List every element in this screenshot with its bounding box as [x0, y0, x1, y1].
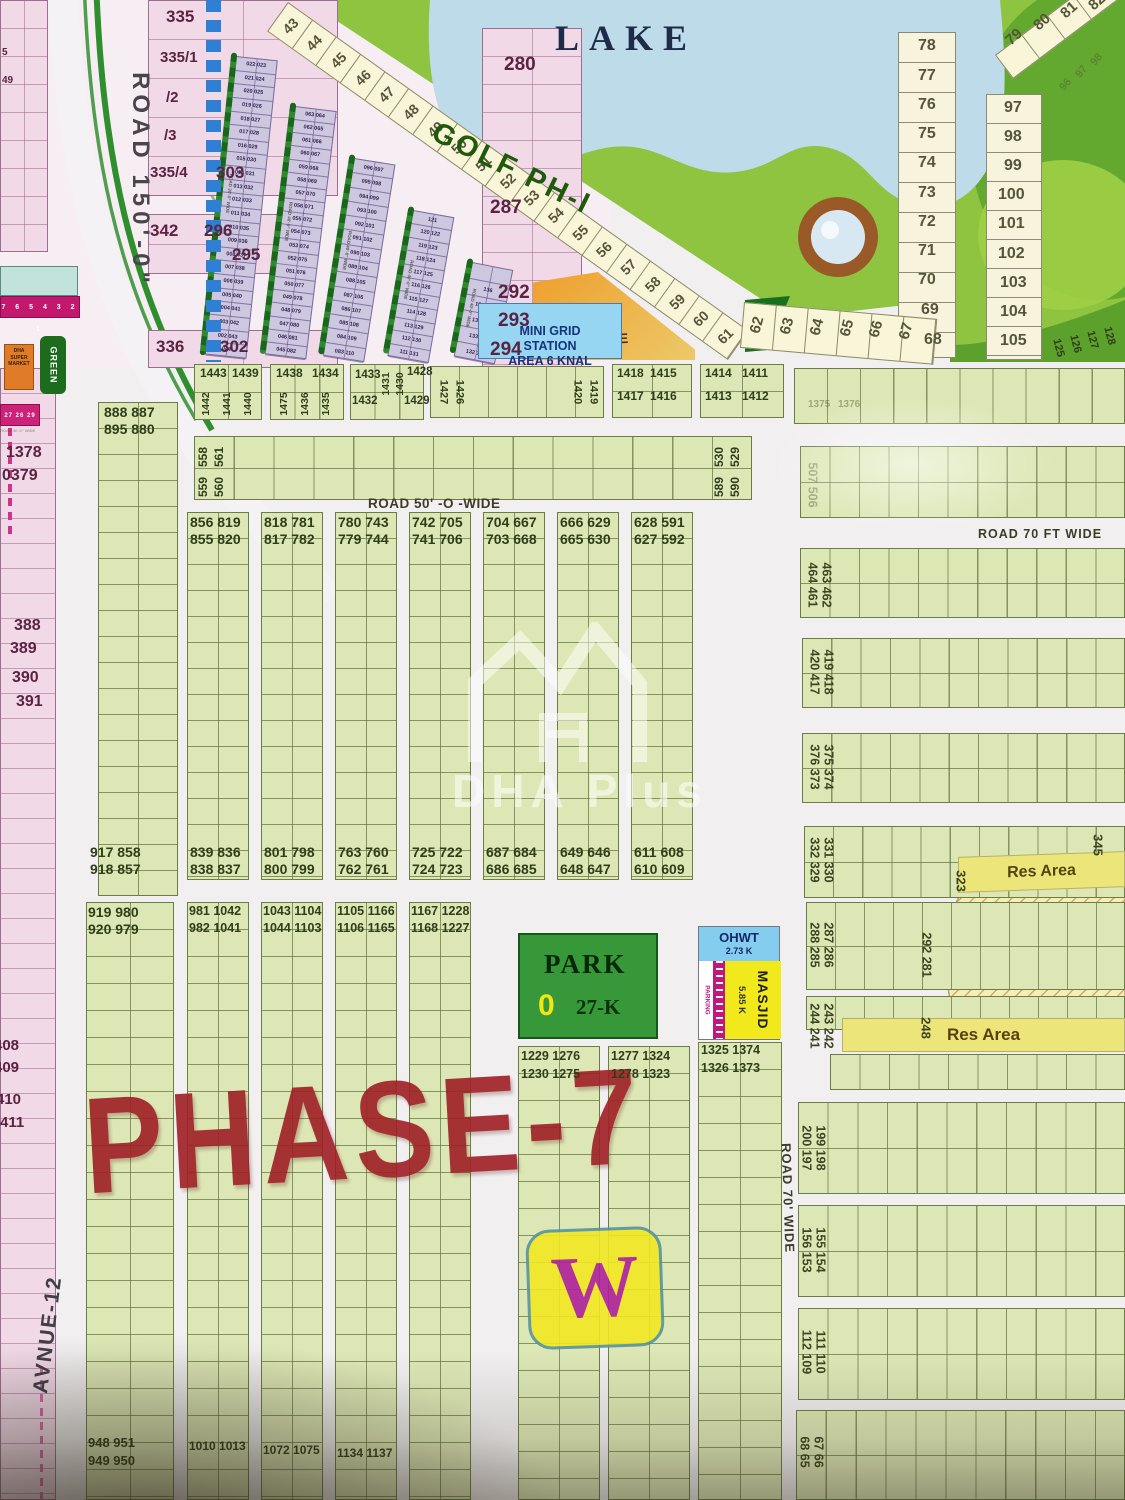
- plot-label: 100: [998, 187, 1025, 203]
- plot-label: 410: [0, 1092, 21, 1107]
- plot-label: 687 684: [486, 845, 537, 859]
- plot-label: 1043 1104: [263, 905, 321, 918]
- parking-strip: PARKING: [699, 961, 714, 1039]
- plot-label: 331 330: [822, 837, 835, 882]
- kiosk-label: DHA SUPER MARKET: [8, 348, 29, 367]
- plot-label: 335: [166, 8, 194, 25]
- plot-label: 104: [1000, 304, 1027, 320]
- watermark-text: DHA Plus: [452, 768, 708, 814]
- plot-label: /3: [164, 128, 177, 143]
- plot-label: 1439: [232, 367, 259, 379]
- plot-label: 895 880: [104, 422, 155, 436]
- plot-label: 763 760: [338, 845, 389, 859]
- plot-label: 742 705: [412, 515, 463, 529]
- plot-label: 67 66: [812, 1436, 825, 1467]
- plot-label: 335/4: [150, 165, 188, 180]
- plot-label: 1378: [6, 445, 42, 461]
- plot-label: 1106 1165: [337, 922, 395, 935]
- plot-label: 665 630: [560, 532, 611, 546]
- plot-label: 888 887: [104, 405, 155, 419]
- ohwt-label: OHWT: [699, 927, 779, 946]
- plot-label: 102: [998, 246, 1025, 262]
- plot-label: 336: [156, 338, 184, 355]
- plot-label: 981 1042: [189, 905, 241, 918]
- plot-label: 560: [213, 477, 225, 497]
- road-150-label: ROAD 150'-0": [128, 72, 152, 288]
- plot-label: 5: [2, 48, 8, 58]
- plot-label: 839 836: [190, 845, 241, 859]
- plot-label: 390: [12, 670, 39, 686]
- plot-label: 610 609: [634, 862, 685, 876]
- plot-label: 1438: [276, 367, 303, 379]
- plot-block: [335, 512, 397, 880]
- plot-label: 1426: [454, 380, 465, 404]
- plot-block: [802, 638, 1125, 708]
- plot-label: 375 374: [822, 744, 835, 789]
- plot-label: 99: [1004, 158, 1022, 174]
- plot-label: 68 65: [798, 1436, 811, 1467]
- plot-label: 74: [918, 155, 936, 171]
- plot-label: 105: [1000, 333, 1027, 349]
- plot-label: 686 685: [486, 862, 537, 876]
- plot-label: 71: [918, 243, 936, 259]
- plot-label: 332 329: [808, 837, 821, 882]
- plot-number: 59: [666, 290, 688, 312]
- plot-label: 762 761: [338, 862, 389, 876]
- res-area-label-2: Res Area: [947, 1025, 1020, 1044]
- plot-label: 1436: [300, 392, 311, 415]
- plot-label: 918 857: [90, 862, 141, 876]
- plot-block: [806, 902, 1125, 990]
- plot-label: 335/1: [160, 50, 198, 65]
- parking-ticks: [713, 961, 725, 1039]
- plot-label: 73: [918, 185, 936, 201]
- plot-label: 101: [998, 216, 1025, 232]
- plot-label: 818 781: [264, 515, 315, 529]
- plot-label: 1442: [201, 392, 212, 415]
- plot-label: 63: [778, 316, 797, 336]
- plot-number: 44: [303, 32, 325, 54]
- plot-block: [261, 512, 323, 880]
- plot-label: 391: [16, 694, 43, 710]
- plot-label: 287: [490, 198, 522, 217]
- plot-label: 1427: [438, 380, 449, 404]
- plot-label: /2: [166, 90, 179, 105]
- plot-label: 1433: [355, 370, 381, 382]
- plot-label: 420 417: [808, 649, 821, 694]
- plot-label: 296: [204, 222, 232, 239]
- green-strip-box: GREEN: [40, 336, 66, 394]
- lake-label: LAKE: [555, 20, 697, 56]
- park-area: PARK 0 27-K: [518, 933, 658, 1039]
- plot-label: 77: [918, 68, 936, 84]
- plot-label: 1441: [222, 392, 233, 415]
- plot-label: 112 109: [800, 1330, 813, 1375]
- plot-label: 1134 1137: [337, 1447, 392, 1459]
- plot-label: 1432: [352, 396, 378, 408]
- plot-label: 1415: [650, 367, 677, 379]
- plot-number: 60: [690, 307, 712, 329]
- kiosk-box: DHA SUPER MARKET: [4, 344, 34, 390]
- plot-block: [98, 402, 178, 896]
- plot-number: 43: [279, 14, 301, 36]
- plot-label: ROAD 40'-0" WIDE: [0, 429, 35, 433]
- plot-label: 558: [197, 447, 209, 467]
- plot-label: 1440: [243, 392, 254, 415]
- plot-label: 292 281: [920, 932, 933, 977]
- plot-label: 1428: [407, 367, 433, 379]
- plot-label: 530: [713, 447, 725, 467]
- plot-label: 1420: [572, 380, 583, 404]
- masjid-size: 5.85 K: [736, 986, 746, 1014]
- plot-label: 156 153: [800, 1227, 813, 1272]
- plot-label: 244 241: [808, 1003, 821, 1048]
- plot-label: 0379: [2, 468, 38, 484]
- plot-label: 1326 1373: [701, 1062, 760, 1075]
- plot-label: 1230 1275: [521, 1068, 580, 1081]
- plot-label: 590: [729, 477, 741, 497]
- plot-label: 741 706: [412, 532, 463, 546]
- plot-label: 199 198: [814, 1125, 827, 1170]
- plot-label: 856 819: [190, 515, 241, 529]
- plot-label: 72: [918, 214, 936, 230]
- plot-label: 287 286: [822, 922, 835, 967]
- plot-label: 49: [2, 76, 13, 86]
- plot-number: 58: [641, 273, 663, 295]
- plot-label: 627 592: [634, 532, 685, 546]
- plot-label: 78: [918, 38, 936, 54]
- plot-block: [798, 1205, 1125, 1297]
- plot-label: 559: [197, 477, 209, 497]
- plot-label: 67: [897, 321, 916, 341]
- plot-label: 1044 1103: [263, 922, 321, 935]
- plot-label: 76: [918, 97, 936, 113]
- plot-number: 61: [714, 325, 736, 347]
- plot-label: 1414: [705, 367, 732, 379]
- plot-label: 65: [838, 318, 857, 338]
- plot-label: 649 646: [560, 845, 611, 859]
- plot-label: 1443: [200, 367, 227, 379]
- plot-label: 1229 1276: [521, 1050, 580, 1063]
- watermark-icon: [465, 622, 665, 772]
- plot-label: 1413: [705, 390, 732, 402]
- ohwt-box: OHWT 2.73 K: [699, 927, 779, 961]
- plot-label: 155 154: [814, 1227, 827, 1272]
- plot-number: 46: [351, 66, 373, 88]
- plot-block: [800, 446, 1125, 518]
- w-logo-letter: W: [549, 1237, 640, 1337]
- ohwt-masjid-block: OHWT 2.73 K PARKING 5.85 K MASJID: [698, 926, 780, 1040]
- plot-label: 855 820: [190, 532, 241, 546]
- plot-block: [794, 368, 1125, 424]
- plot-block: [830, 1054, 1125, 1090]
- plot-label: 103: [1000, 275, 1027, 291]
- plot-label: 666 629: [560, 515, 611, 529]
- plot-label: 70: [918, 272, 936, 288]
- plot-label: 1375: [808, 400, 830, 410]
- plot-label: 111 110: [814, 1330, 827, 1373]
- plot-label: 342: [150, 222, 178, 239]
- plot-label: 1411: [742, 367, 768, 379]
- golf-hole: [811, 210, 865, 264]
- plot-label: 1105 1166: [337, 905, 395, 918]
- plot-block: [798, 1102, 1125, 1194]
- plot-label: 982 1041: [189, 922, 241, 935]
- plot-label: 295: [232, 246, 260, 263]
- plot-label: 780 743: [338, 515, 389, 529]
- plot-label: 1072 1075: [263, 1444, 320, 1456]
- plot-block: [409, 512, 471, 880]
- plot-label: 1435: [321, 392, 332, 415]
- road-50-label: ROAD 50' -O -WIDE: [368, 497, 500, 511]
- plot-block: [194, 436, 752, 500]
- plot-block: [698, 1042, 782, 1500]
- plot-block: [0, 0, 48, 252]
- plot-block: [800, 548, 1125, 618]
- plot-label: 724 723: [412, 862, 463, 876]
- plot-label: 243 242: [822, 1003, 835, 1048]
- commercial-box-2: 27 26 29: [0, 404, 40, 426]
- plot-label: 1168 1227: [411, 922, 469, 935]
- plot-label: 949 950: [88, 1454, 135, 1467]
- masjid-label: MASJID: [756, 971, 770, 1030]
- plot-label: 288 285: [808, 922, 821, 967]
- plot-label: 280: [504, 55, 536, 74]
- plot-label: 97: [1004, 100, 1022, 116]
- plot-block: [187, 512, 249, 880]
- res-area-label-1: Res Area: [1007, 862, 1076, 881]
- plot-label: 248: [920, 1017, 933, 1039]
- plot-label: 98: [1004, 129, 1022, 145]
- plot-number: 57: [617, 256, 639, 278]
- park-zero: 0: [538, 991, 555, 1021]
- plot-label: 628 591: [634, 515, 685, 529]
- plot-label: 817 782: [264, 532, 315, 546]
- plot-label: 507 506: [806, 462, 819, 507]
- plot-label: 703 668: [486, 532, 537, 546]
- plot-label: 1434: [312, 367, 339, 379]
- plot-label: 389: [10, 641, 37, 657]
- plot-label: 75: [918, 126, 936, 142]
- plot-label: 1419: [588, 380, 599, 404]
- plot-label: 376 373: [808, 744, 821, 789]
- plot-block: [796, 1410, 1125, 1500]
- ohwt-size: 2.73 K: [699, 946, 779, 956]
- park-label: PARK: [544, 951, 627, 978]
- plot-label: 1417: [617, 390, 644, 402]
- plot-label: 1429: [404, 396, 430, 408]
- map-canvas: 4344454647484950515253545556575859606102…: [0, 0, 1125, 1500]
- plot-label: 408: [0, 1038, 19, 1053]
- masjid-box: 5.85 K MASJID: [725, 961, 781, 1039]
- plot-label: 1278 1323: [611, 1068, 670, 1081]
- plot-label: 388: [14, 618, 41, 634]
- plot-label: 69: [921, 302, 939, 318]
- plot-label: 838 837: [190, 862, 241, 876]
- plot-number: 56: [593, 239, 615, 261]
- teal-block: [0, 266, 78, 296]
- w-logo: W: [525, 1226, 665, 1351]
- plot-label: 1416: [650, 390, 677, 402]
- plot-label: 1430: [395, 372, 406, 395]
- parking-label: PARKING: [703, 985, 710, 1015]
- plot-number: 45: [327, 49, 349, 71]
- plot-label: 293: [498, 311, 530, 330]
- plot-number: 55: [569, 221, 591, 243]
- plot-label: 66: [867, 319, 886, 339]
- plot-label: 200 197: [800, 1125, 813, 1170]
- plot-label: 345: [1092, 834, 1105, 856]
- plot-label: 725 722: [412, 845, 463, 859]
- plot-label: 1167 1228: [411, 905, 469, 918]
- commercial-box-2-numbers: 27 26 29: [4, 413, 35, 419]
- plot-number: 47: [376, 83, 398, 105]
- commercial-strip: 7 6 5 4 3 2 1: [0, 296, 80, 318]
- plot-label: 64: [808, 317, 827, 337]
- plot-label: 917 858: [90, 845, 141, 859]
- plot-label: 1418: [617, 367, 644, 379]
- plot-label: 920 979: [88, 922, 139, 936]
- park-size: 27-K: [576, 997, 620, 1018]
- plot-label: 463 462: [820, 562, 833, 607]
- plot-label: 704 667: [486, 515, 537, 529]
- plot-label: 323: [955, 870, 968, 892]
- road-70-vertical-label: ROAD 70' WIDE: [780, 1143, 797, 1253]
- plot-label: 648 647: [560, 862, 611, 876]
- res-area-band-2: Res Area: [842, 1018, 1125, 1052]
- plot-label: 779 744: [338, 532, 389, 546]
- plot-label: 411: [0, 1115, 24, 1130]
- plot-label: 294: [490, 340, 522, 359]
- plot-label: 561: [213, 447, 225, 467]
- plot-label: 419 418: [822, 649, 835, 694]
- plot-label: 800 799: [264, 862, 315, 876]
- plot-label: 1010 1013: [189, 1440, 246, 1452]
- plot-label: 919 980: [88, 905, 139, 919]
- plot-label: 529: [729, 447, 741, 467]
- plot-label: 801 798: [264, 845, 315, 859]
- plot-block: [798, 1308, 1125, 1400]
- plot-label: 1431: [381, 372, 392, 395]
- res-area-band-1: Res Area: [958, 851, 1125, 893]
- plot-label: 1277 1324: [611, 1050, 670, 1063]
- green-strip-label: GREEN: [49, 346, 58, 383]
- plot-block: [802, 733, 1125, 803]
- plot-label: 464 461: [806, 562, 819, 607]
- plot-label: 303: [216, 164, 244, 181]
- plot-label: 62: [748, 315, 767, 335]
- road-70ft-label: ROAD 70 FT WIDE: [978, 528, 1102, 541]
- plot-label: 292: [498, 283, 530, 302]
- plot-label: 68: [924, 332, 942, 348]
- plot-label: 1475: [279, 392, 290, 415]
- plot-label: 1325 1374: [701, 1044, 760, 1057]
- plot-label: 948 951: [88, 1436, 135, 1449]
- plot-label: 1412: [742, 390, 769, 402]
- plot-number: 48: [400, 101, 422, 123]
- plot-label: 302: [220, 338, 248, 355]
- plot-label: 1376: [838, 400, 860, 410]
- plot-label: 409: [0, 1060, 19, 1075]
- plot-label: 611 608: [634, 845, 684, 859]
- golf-hole-highlight: [821, 221, 839, 239]
- plot-label: 589: [713, 477, 725, 497]
